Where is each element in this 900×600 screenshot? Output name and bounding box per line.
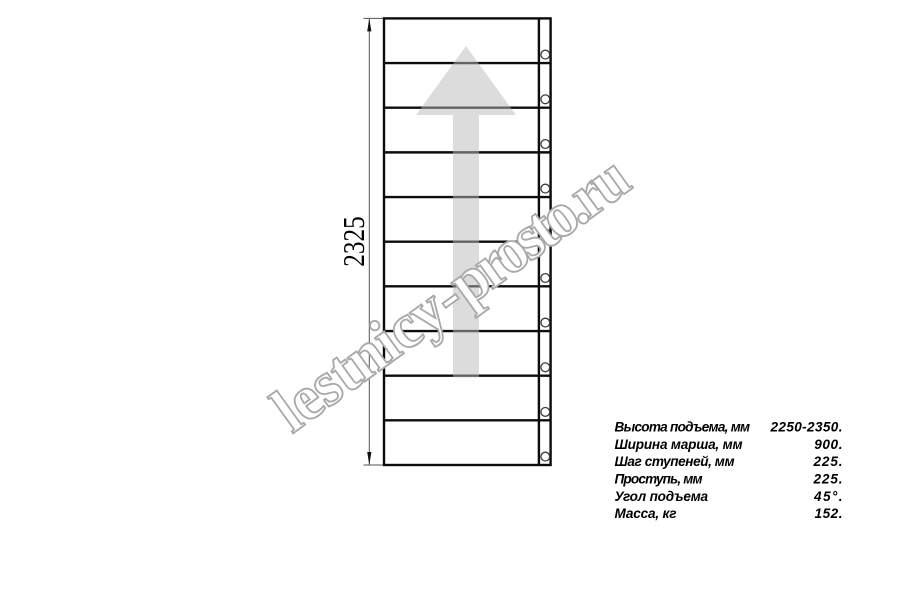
svg-text:Шаг ступеней, мм: Шаг ступеней, мм: [615, 454, 735, 469]
svg-text:Высота подъема, мм: Высота подъема, мм: [615, 420, 751, 435]
svg-text:2325: 2325: [337, 216, 371, 267]
svg-text:152.: 152.: [815, 506, 843, 521]
svg-text:225.: 225.: [813, 472, 843, 487]
svg-text:lestnicy-prosto.ru: lestnicy-prosto.ru: [259, 141, 642, 445]
svg-text:2250-2350.: 2250-2350.: [770, 420, 843, 435]
svg-text:Проступь, мм: Проступь, мм: [615, 472, 703, 487]
svg-text:Угол подъема: Угол подъема: [615, 489, 709, 504]
svg-text:900.: 900.: [814, 437, 842, 452]
svg-text:45°.: 45°.: [813, 489, 843, 504]
svg-text:Масса, кг: Масса, кг: [615, 506, 677, 521]
svg-text:225.: 225.: [813, 454, 843, 469]
svg-text:Ширина марша, мм: Ширина марша, мм: [615, 437, 743, 452]
